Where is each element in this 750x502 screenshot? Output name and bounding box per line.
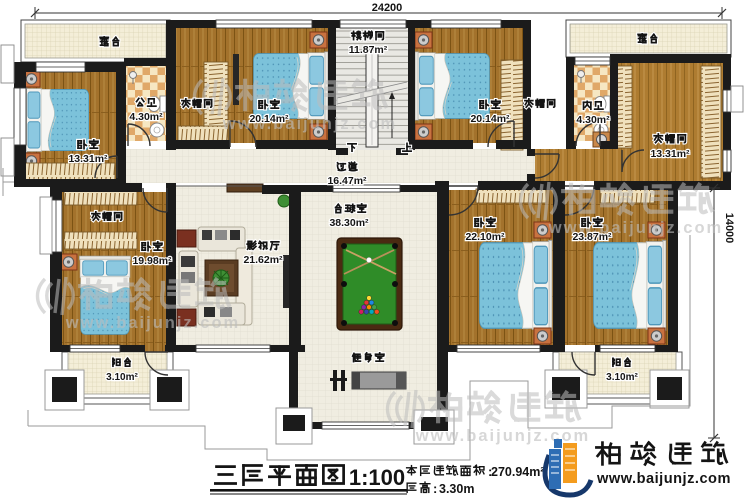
svg-text:www.baijunjz.com: www.baijunjz.com	[222, 115, 397, 133]
svg-text:13.31m²: 13.31m²	[68, 153, 108, 165]
svg-text:16.47m²: 16.47m²	[327, 175, 367, 187]
svg-text:1:100: 1:100	[349, 465, 405, 490]
svg-text:20.14m²: 20.14m²	[249, 113, 289, 125]
svg-text:20.14m²: 20.14m²	[470, 113, 510, 125]
svg-text::: :	[433, 481, 437, 496]
svg-text:21.62m²: 21.62m²	[243, 254, 283, 266]
svg-text:3.10m²: 3.10m²	[606, 372, 638, 383]
svg-text:38.30m²: 38.30m²	[329, 217, 369, 229]
svg-text:www.baijunjz.com: www.baijunjz.com	[65, 314, 240, 332]
svg-text:22.10m²: 22.10m²	[465, 231, 505, 243]
svg-text:www.baijunjz.com: www.baijunjz.com	[415, 427, 590, 445]
svg-text:24200: 24200	[372, 2, 403, 14]
svg-text:3.10m²: 3.10m²	[106, 372, 138, 383]
svg-text:270.94m²: 270.94m²	[491, 465, 545, 479]
svg-text:14000: 14000	[723, 213, 735, 244]
svg-text:13.31m²: 13.31m²	[650, 148, 690, 160]
svg-text:3.30m: 3.30m	[439, 482, 474, 496]
svg-text:23.87m²: 23.87m²	[572, 231, 612, 243]
svg-text:19.98m²: 19.98m²	[132, 255, 172, 267]
svg-text:www.baijunjz.com: www.baijunjz.com	[596, 471, 731, 487]
svg-text:4.30m²: 4.30m²	[129, 111, 163, 123]
svg-text:4.30m²: 4.30m²	[576, 114, 610, 126]
svg-text:11.87m²: 11.87m²	[349, 44, 388, 56]
